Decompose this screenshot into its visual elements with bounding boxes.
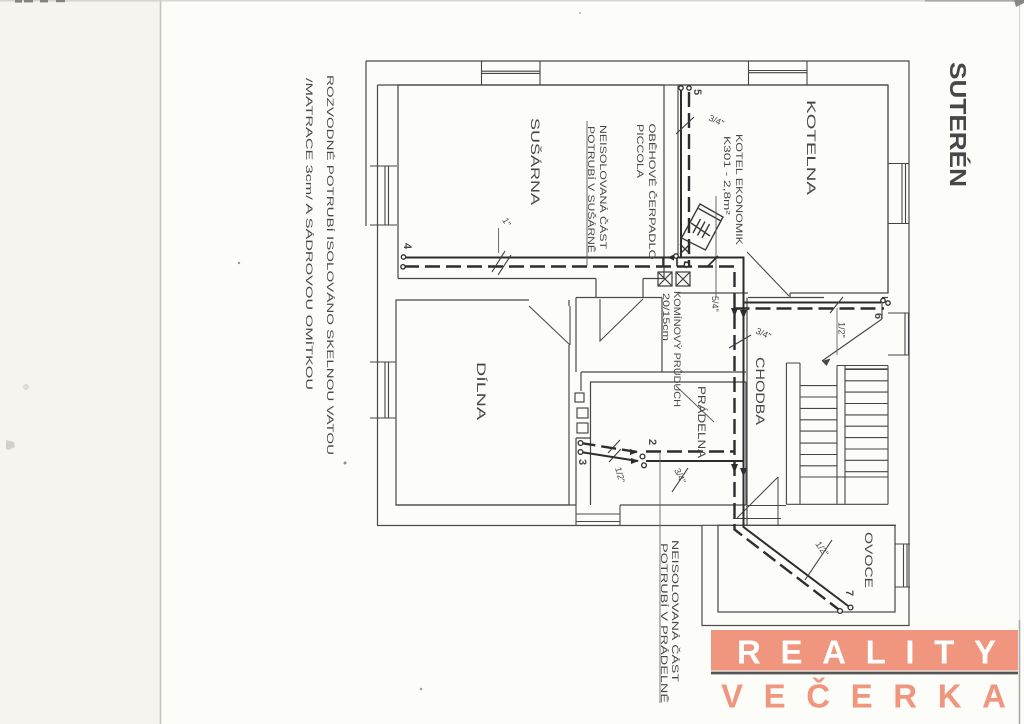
svg-text:3: 3 xyxy=(576,459,588,465)
svg-text:1/2": 1/2" xyxy=(837,322,847,338)
svg-text:NEISOLOVANÁ ČÁST: NEISOLOVANÁ ČÁST xyxy=(598,125,608,250)
svg-text:KOMÍNOVÝ PRŮDUCH: KOMÍNOVÝ PRŮDUCH xyxy=(672,291,683,407)
svg-text:SUŠÁRNA: SUŠÁRNA xyxy=(528,118,543,205)
svg-text:5/4": 5/4" xyxy=(710,296,720,312)
svg-text:POTRUBÍ V SUŠÁRNĚ: POTRUBÍ V SUŠÁRNĚ xyxy=(586,126,596,253)
svg-text:KOTEL EKONOMIK: KOTEL EKONOMIK xyxy=(734,134,744,245)
svg-text:6: 6 xyxy=(872,313,884,319)
svg-text:5: 5 xyxy=(691,89,703,95)
svg-text:DÍLNA: DÍLNA xyxy=(474,362,489,420)
svg-text:CHODBA: CHODBA xyxy=(753,357,767,425)
svg-text:POTRUBÍ V PRÁDELNĚ: POTRUBÍ V PRÁDELNĚ xyxy=(659,543,669,703)
svg-text:NEISOLOVANÁ ČÁST: NEISOLOVANÁ ČÁST xyxy=(670,540,680,683)
svg-text:20/15cm: 20/15cm xyxy=(661,293,671,341)
svg-text:KOTELNA: KOTELNA xyxy=(804,100,818,195)
svg-text:ROZVODNÉ POTRUBÍ ISOLOVÁNO SKE: ROZVODNÉ POTRUBÍ ISOLOVÁNO SKELNOU VATOU xyxy=(325,75,335,455)
svg-text:2: 2 xyxy=(646,439,658,445)
svg-text:7: 7 xyxy=(843,590,855,596)
svg-text:K301 - 2,8m²: K301 - 2,8m² xyxy=(722,136,732,215)
svg-text:OVOCE: OVOCE xyxy=(862,532,874,588)
svg-text:SUTERÉN: SUTERÉN xyxy=(945,62,972,187)
svg-text:4: 4 xyxy=(401,243,413,250)
svg-text:OBĚHOVÉ ČERPADLO: OBĚHOVÉ ČERPADLO xyxy=(647,124,657,260)
svg-text:/MATRACE 3cm/ A SÁDROVOU OMÍTK: /MATRACE 3cm/ A SÁDROVOU OMÍTKOU xyxy=(304,78,314,390)
svg-text:PICCOLA: PICCOLA xyxy=(635,124,645,178)
svg-text:PRÁDELNA: PRÁDELNA xyxy=(695,386,708,459)
